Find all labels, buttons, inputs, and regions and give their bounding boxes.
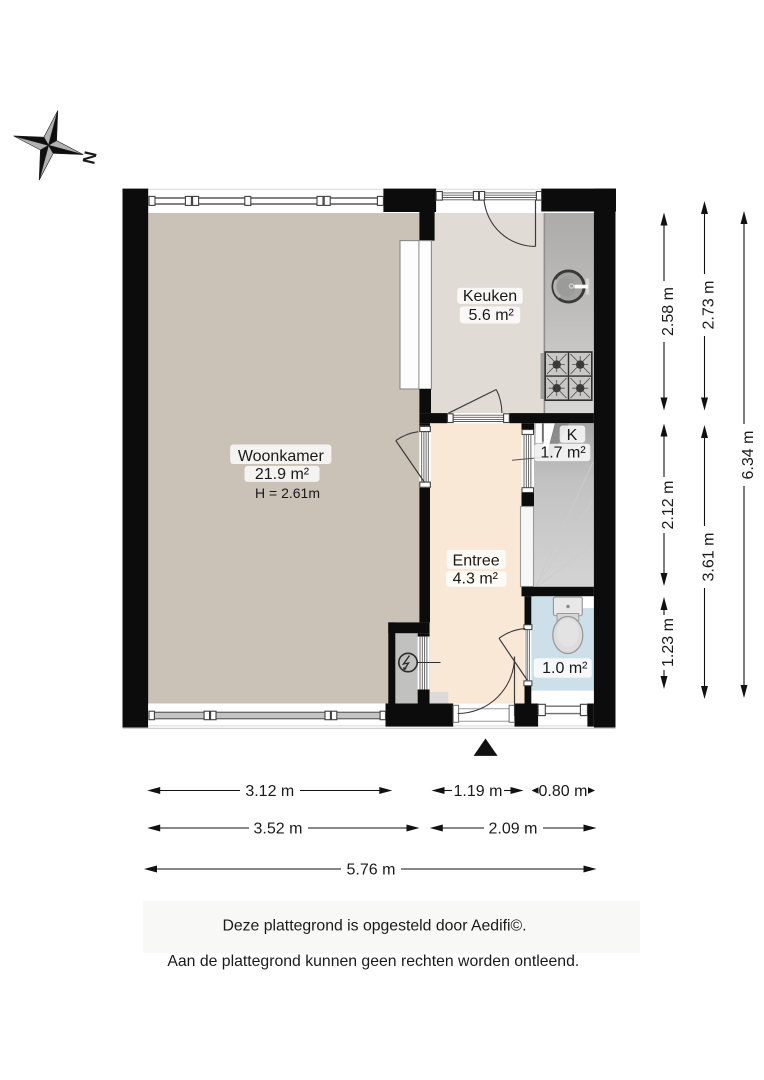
svg-text:3.12 m: 3.12 m <box>245 783 294 800</box>
svg-text:1.0 m²: 1.0 m² <box>542 660 588 677</box>
svg-text:0.80 m: 0.80 m <box>539 783 588 800</box>
svg-text:21.9 m²: 21.9 m² <box>255 466 310 483</box>
svg-text:Aan de plattegrond kunnen geen: Aan de plattegrond kunnen geen rechten w… <box>167 953 579 970</box>
svg-text:4.3 m²: 4.3 m² <box>453 571 499 588</box>
svg-text:N: N <box>78 149 100 166</box>
svg-text:1.23 m: 1.23 m <box>660 618 677 667</box>
svg-text:Deze plattegrond is opgesteld: Deze plattegrond is opgesteld door Aedif… <box>222 918 526 935</box>
svg-text:5.6 m²: 5.6 m² <box>469 307 515 324</box>
svg-text:1.19 m: 1.19 m <box>454 783 503 800</box>
svg-text:2.58 m: 2.58 m <box>660 287 677 336</box>
svg-text:Woonkamer: Woonkamer <box>238 448 325 465</box>
svg-text:H = 2.61m: H = 2.61m <box>255 485 320 501</box>
svg-text:5.76 m: 5.76 m <box>347 862 396 879</box>
svg-text:Entree: Entree <box>453 552 500 569</box>
svg-text:Keuken: Keuken <box>463 288 517 305</box>
svg-text:3.61 m: 3.61 m <box>701 533 718 582</box>
svg-text:2.12 m: 2.12 m <box>660 481 677 530</box>
svg-text:K: K <box>567 427 578 444</box>
svg-text:2.09 m: 2.09 m <box>489 821 538 838</box>
svg-text:3.52 m: 3.52 m <box>254 821 303 838</box>
svg-text:6.34 m: 6.34 m <box>740 431 757 480</box>
svg-text:1.7 m²: 1.7 m² <box>540 445 586 462</box>
svg-text:2.73 m: 2.73 m <box>701 281 718 330</box>
